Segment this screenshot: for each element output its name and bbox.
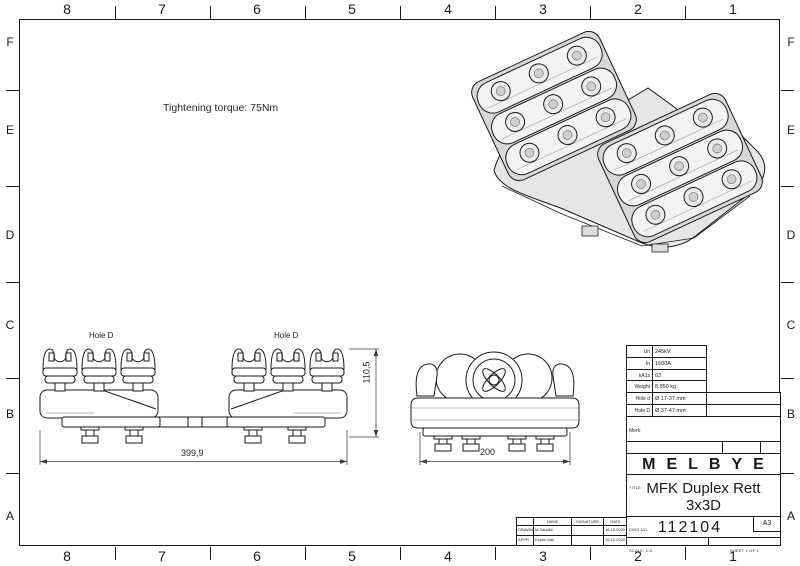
spec-value: 1600A: [653, 358, 706, 369]
merk-cell: Merk:: [626, 416, 781, 442]
zone-col-label: 8: [63, 2, 71, 16]
front-left-clamp: [40, 349, 160, 443]
zone-tick: [115, 547, 116, 560]
approvals-table: NAME SIGNATURE DATE DRAWN M.Sandlie 16.1…: [516, 517, 627, 546]
zone-col-label: 2: [634, 2, 642, 16]
zone-row-label: B: [3, 408, 17, 420]
merk-label: Merk:: [629, 428, 642, 434]
title-label: TITLE:: [629, 485, 642, 490]
zone-col-label: 1: [729, 2, 737, 16]
zone-row-label: A: [784, 510, 798, 522]
torque-note: Tightening torque: 75Nm: [163, 103, 278, 114]
zone-col-label: 5: [348, 2, 356, 16]
side-width-dim: 200: [480, 448, 495, 457]
zone-tick: [210, 6, 211, 19]
zone-col-label: 6: [253, 549, 261, 563]
zone-col-label: 6: [253, 2, 261, 16]
spec-table-extension: [706, 392, 781, 417]
front-view-drawing: [38, 338, 388, 470]
approvals-header-date: DATE: [604, 518, 627, 526]
scale-sheet-row: SCALE: 1:5 SHEET 1 OF 1: [626, 537, 781, 546]
approvals-header-name: NAME: [534, 518, 572, 526]
zone-tick: [6, 282, 19, 283]
brand-logo-text: MELBYE: [632, 456, 775, 473]
zone-tick: [6, 186, 19, 187]
zone-row-label: A: [3, 510, 17, 522]
hole-d-label-right: Hole D: [274, 332, 298, 340]
zone-tick: [6, 378, 19, 379]
spec-value: 8.850 kg: [653, 381, 706, 392]
zone-col-label: 7: [158, 549, 166, 563]
zone-col-label: 4: [444, 2, 452, 16]
approvals-role: DRAWN: [517, 526, 534, 536]
front-width-dim: 399,9: [181, 449, 204, 458]
zone-col-label: 4: [444, 549, 452, 563]
hole-d-label-left: Hole D: [89, 332, 113, 340]
zone-tick: [6, 473, 19, 474]
zone-row-label: F: [3, 36, 17, 48]
zone-row-label: D: [3, 229, 17, 241]
zone-tick: [400, 547, 401, 560]
dwg-no-cell: DWG NO. 112104 A3: [626, 516, 781, 538]
approvals-role: APPR: [517, 536, 534, 546]
approvals-date: 16.12.2020: [604, 526, 627, 536]
brand-row: MELBYE: [626, 453, 781, 475]
approvals-header-signature: SIGNATURE: [572, 518, 604, 526]
front-height-dim: 110,5: [363, 360, 372, 386]
drawing-title-line2: 3x3D: [627, 497, 780, 514]
front-right-clamp: [227, 349, 347, 443]
zone-tick: [210, 547, 211, 560]
spec-label: kA1s: [627, 370, 653, 381]
zone-col-label: 3: [539, 549, 547, 563]
spec-value: Ø 17-37 mm: [653, 393, 706, 404]
spec-label: Un: [627, 346, 653, 357]
isometric-view-drawing: [442, 18, 792, 258]
sheet-text: SHEET 1 OF 1: [730, 548, 759, 553]
zone-tick: [495, 547, 496, 560]
zone-tick: [685, 547, 686, 560]
zone-tick: [590, 547, 591, 560]
zone-tick: [115, 6, 116, 19]
front-centre-bar: [158, 417, 229, 427]
zone-tick: [6, 90, 19, 91]
spec-table: Un245kV In1600A kA1s63 Weight8.850 kg Ho…: [626, 345, 707, 417]
zone-col-label: 7: [158, 2, 166, 16]
drawing-number: 112104: [627, 519, 753, 537]
zone-tick: [305, 6, 306, 19]
spec-value: 63: [653, 370, 706, 381]
spec-label: Weight: [627, 381, 653, 392]
zone-col-label: 8: [63, 549, 71, 563]
spec-label: In: [627, 358, 653, 369]
zone-tick: [305, 547, 306, 560]
zone-col-label: 5: [348, 549, 356, 563]
zone-row-label: E: [3, 124, 17, 136]
zone-tick: [781, 282, 794, 283]
drawing-title-line1: MFK Duplex Rett: [627, 480, 780, 497]
zone-col-label: 3: [539, 2, 547, 16]
scale-text: SCALE: 1:5: [629, 548, 652, 553]
spec-value: 245kV: [653, 346, 706, 357]
zone-tick: [400, 6, 401, 19]
zone-row-label: B: [784, 408, 798, 420]
approvals-name: Espen Aas: [534, 536, 572, 546]
approvals-date: 16.12.2020: [604, 536, 627, 546]
zone-row-label: C: [3, 319, 17, 331]
spec-label: Hole d: [627, 393, 653, 404]
approvals-name: M.Sandlie: [534, 526, 572, 536]
zone-tick: [781, 473, 794, 474]
title-cell: TITLE: MFK Duplex Rett 3x3D: [626, 474, 781, 517]
zone-tick: [781, 378, 794, 379]
zone-row-label: C: [784, 319, 798, 331]
drawing-sheet: 8 7 6 5 4 3 2 1 8 7 6 5 4 3 2 1 F E D C …: [0, 0, 800, 566]
paper-size-badge: A3: [753, 517, 780, 532]
